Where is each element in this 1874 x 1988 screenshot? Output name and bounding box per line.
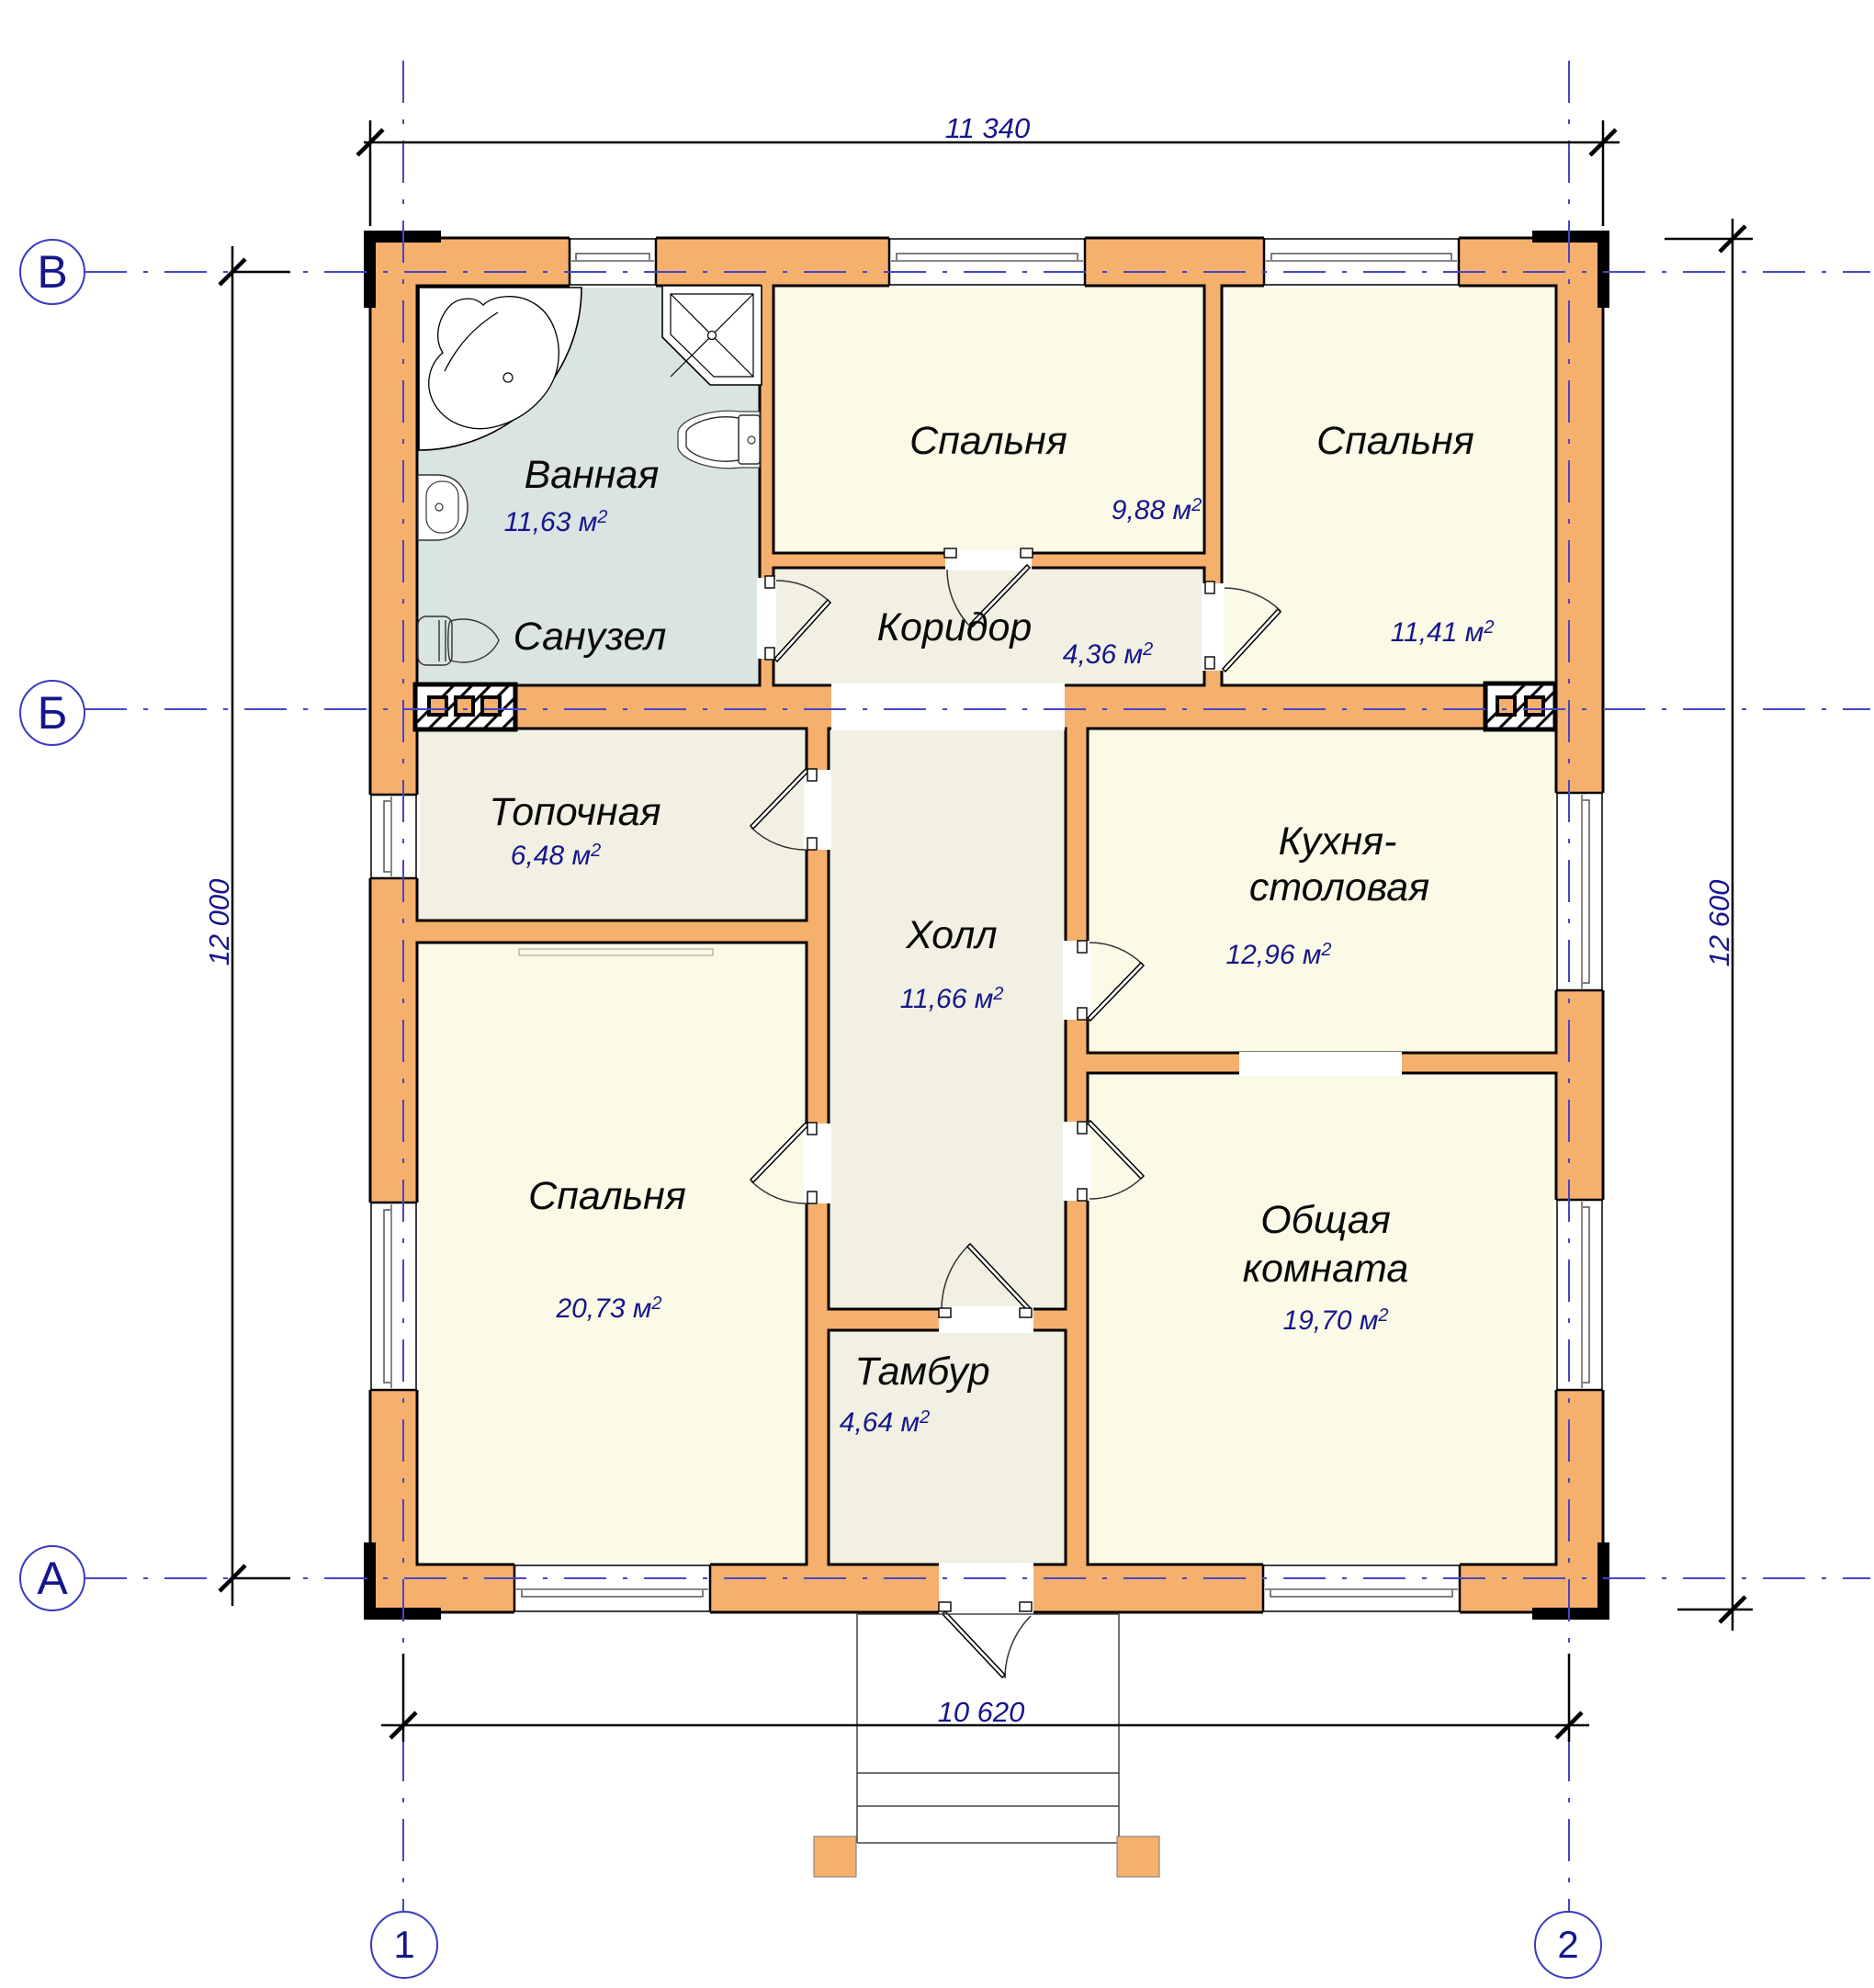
svg-text:столовая: столовая [1249, 865, 1429, 909]
svg-text:В: В [37, 246, 67, 298]
svg-text:1: 1 [393, 1923, 414, 1966]
svg-text:комната: комната [1243, 1247, 1409, 1291]
svg-text:12 600: 12 600 [1703, 880, 1735, 967]
svg-text:10 620: 10 620 [938, 1696, 1025, 1728]
svg-text:11,63 м2: 11,63 м2 [504, 507, 608, 537]
svg-text:11 340: 11 340 [945, 112, 1031, 144]
svg-text:Спальня: Спальня [1316, 419, 1474, 463]
svg-text:Тамбур: Тамбур [854, 1350, 989, 1394]
svg-text:А: А [37, 1553, 68, 1604]
svg-text:11,41 м2: 11,41 м2 [1391, 617, 1495, 648]
svg-text:Б: Б [38, 687, 68, 739]
svg-text:2: 2 [1557, 1923, 1578, 1966]
svg-text:Спальня: Спальня [909, 419, 1067, 463]
svg-text:4,64 м2: 4,64 м2 [840, 1407, 930, 1438]
svg-text:20,73 м2: 20,73 м2 [555, 1293, 661, 1324]
svg-text:Санузел: Санузел [514, 615, 667, 659]
svg-text:12 000: 12 000 [203, 879, 235, 966]
svg-text:6,48 м2: 6,48 м2 [511, 841, 601, 871]
svg-text:Коридор: Коридор [877, 605, 1033, 649]
svg-text:19,70 м2: 19,70 м2 [1282, 1305, 1388, 1336]
svg-text:Спальня: Спальня [528, 1174, 686, 1218]
svg-text:Общая: Общая [1260, 1198, 1391, 1242]
svg-text:12,96 м2: 12,96 м2 [1225, 940, 1331, 970]
svg-text:11,66 м2: 11,66 м2 [900, 984, 1004, 1014]
svg-text:Кухня-: Кухня- [1279, 819, 1397, 864]
svg-text:4,36 м2: 4,36 м2 [1063, 639, 1153, 670]
svg-text:Ванная: Ванная [525, 453, 660, 497]
svg-text:9,88 м2: 9,88 м2 [1112, 495, 1202, 525]
svg-text:Холл: Холл [905, 913, 997, 957]
svg-text:Топочная: Топочная [489, 790, 660, 834]
